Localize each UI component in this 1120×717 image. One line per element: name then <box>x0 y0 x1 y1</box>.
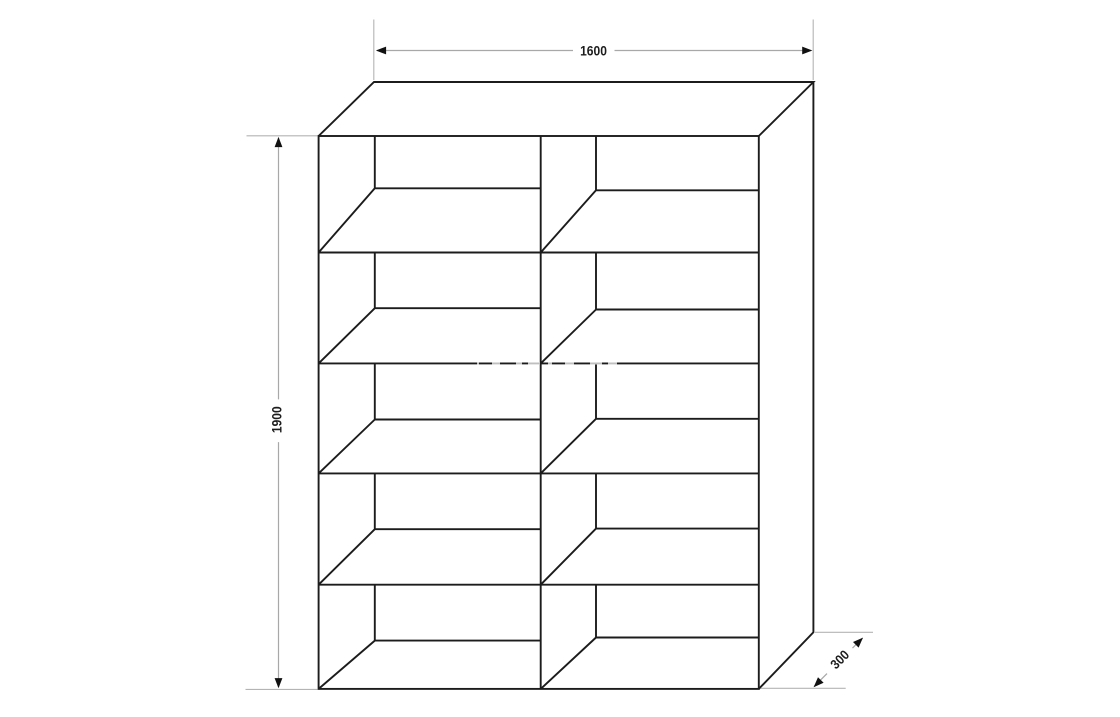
svg-text:1600: 1600 <box>580 43 607 59</box>
svg-text:1900: 1900 <box>269 406 285 433</box>
